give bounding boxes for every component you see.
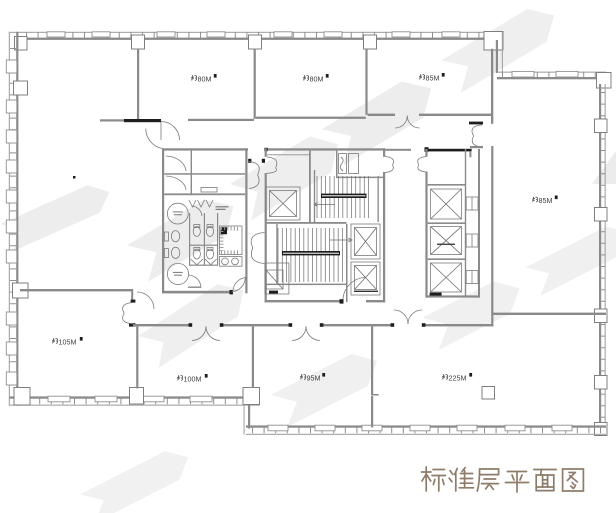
svg-text:80M: 80M <box>310 75 324 84</box>
svg-text:85M: 85M <box>539 196 553 205</box>
svg-text:80M: 80M <box>198 75 212 84</box>
svg-text:85M: 85M <box>426 74 440 83</box>
svg-text:105M: 105M <box>59 338 77 347</box>
svg-text:100M: 100M <box>184 375 202 384</box>
svg-text:95M: 95M <box>307 374 321 383</box>
svg-text:225M: 225M <box>449 374 467 383</box>
